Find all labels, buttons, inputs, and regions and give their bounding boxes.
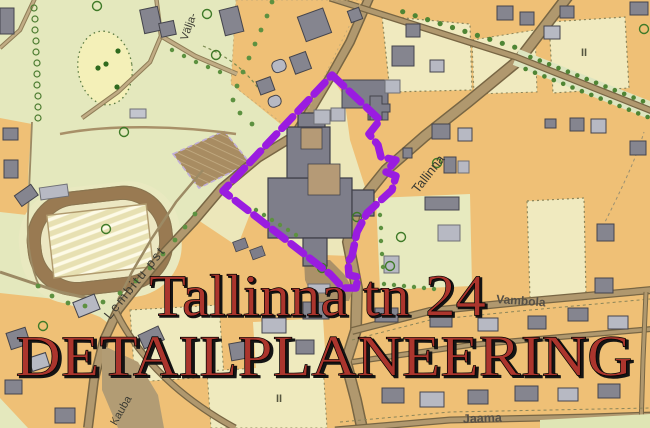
svg-text:DETAILPLANEERING: DETAILPLANEERING: [16, 324, 633, 389]
svg-text:II: II: [581, 47, 587, 59]
svg-text:II: II: [276, 393, 282, 405]
svg-text:Tallinna tn 24: Tallinna tn 24: [149, 263, 486, 329]
svg-text:Jaama: Jaama: [463, 411, 503, 426]
